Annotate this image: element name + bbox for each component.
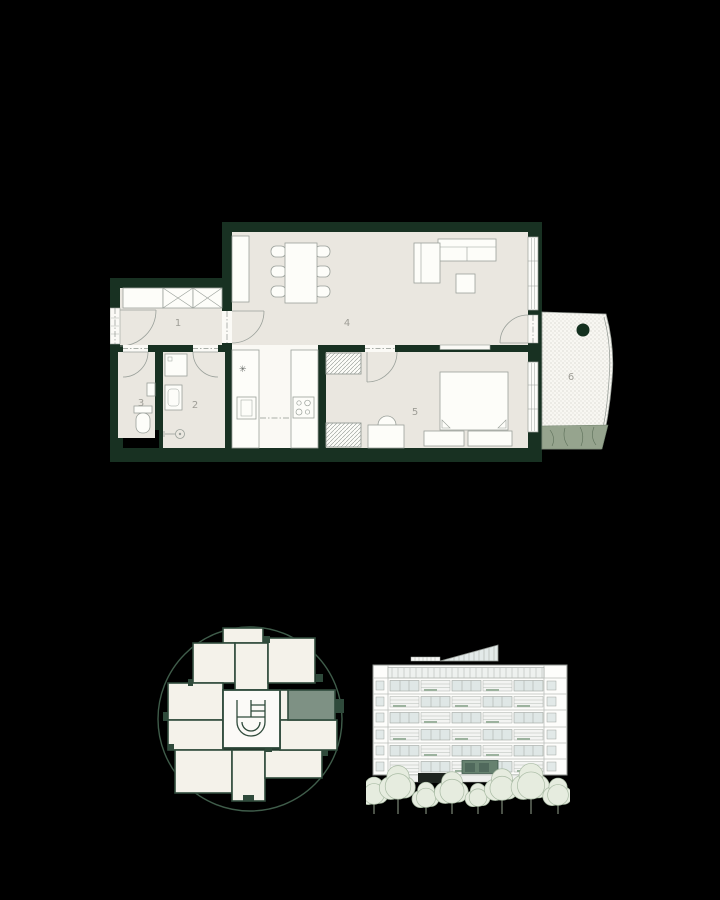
room-label-wc: 3 <box>138 398 144 409</box>
tall-cabinet <box>232 236 249 302</box>
balcony-planting <box>542 425 608 449</box>
wc-sink <box>147 383 155 396</box>
bed-bench-left <box>424 431 464 446</box>
wardrobe-top <box>326 353 361 374</box>
room-label-bedroom: 5 <box>412 407 418 418</box>
wardrobe-bottom <box>326 423 361 447</box>
room-label-living: 4 <box>344 318 350 329</box>
desk <box>368 425 404 448</box>
balcony-tree-pot <box>577 324 590 337</box>
stair-core <box>223 690 280 748</box>
highlighted-unit-balcony <box>335 699 344 713</box>
bed <box>440 372 508 430</box>
floor-key-plan <box>155 622 347 818</box>
highlighted-unit <box>288 690 335 720</box>
bed-bench-right <box>468 431 512 446</box>
room-label-hall: 1 <box>175 318 181 329</box>
bedroom-window <box>528 362 538 432</box>
room-label-bathroom: 2 <box>192 400 198 411</box>
coffee-table <box>456 274 475 293</box>
room-label-balcony: 6 <box>568 372 574 383</box>
floor-plan-drawing: ✳ <box>110 222 618 462</box>
hall-wardrobe <box>123 288 222 308</box>
living-room-window <box>528 237 538 310</box>
apartment-floor-plan: ✳ <box>110 222 618 462</box>
toilet <box>136 413 150 433</box>
building-elevation <box>366 626 570 816</box>
interior-window <box>440 345 490 350</box>
facade-grid <box>373 668 567 776</box>
balcony <box>542 312 613 449</box>
highlighted-unit-elevation <box>462 761 498 774</box>
roof-structure <box>411 645 498 661</box>
dining-table <box>285 243 317 303</box>
stove <box>293 397 314 418</box>
freezer-icon: ✳ <box>239 365 247 375</box>
